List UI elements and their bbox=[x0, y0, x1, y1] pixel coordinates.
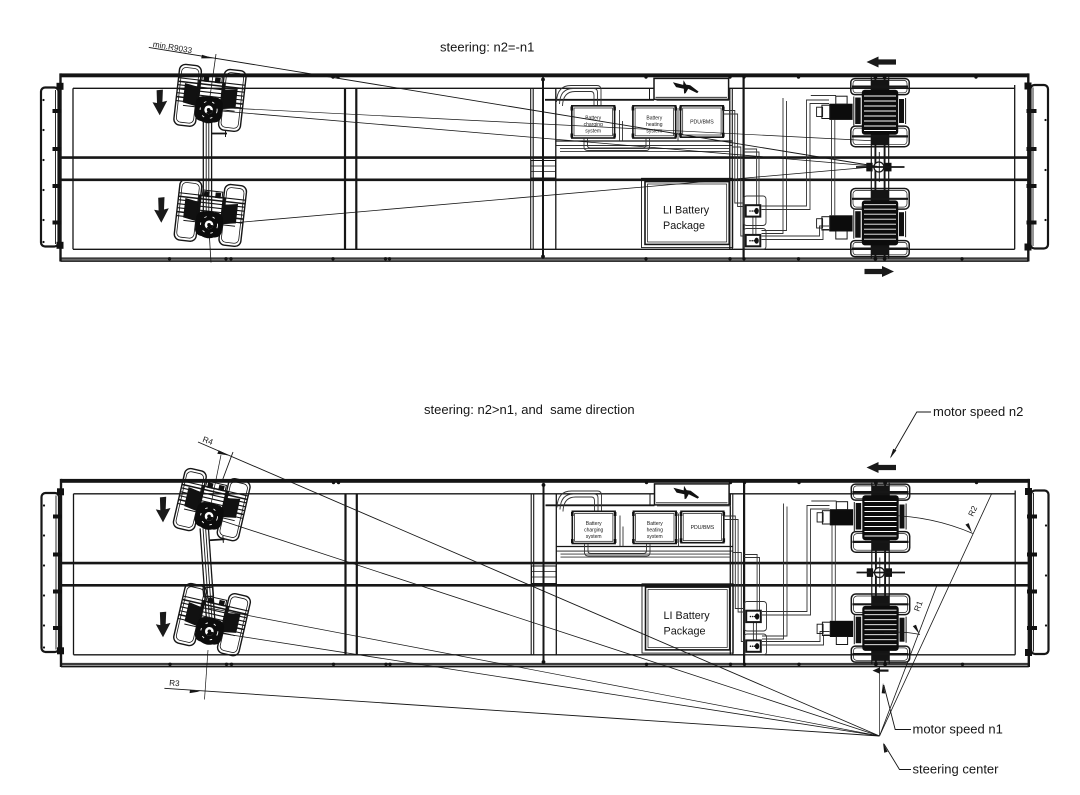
svg-text:R2: R2 bbox=[967, 504, 980, 518]
svg-text:R3: R3 bbox=[169, 679, 181, 689]
svg-text:steering center: steering center bbox=[913, 762, 1000, 777]
svg-text:steering: n2>n1, and same dir: steering: n2>n1, and same direction bbox=[424, 402, 635, 417]
svg-text:R4: R4 bbox=[201, 435, 214, 447]
svg-text:steering: n2=-n1: steering: n2=-n1 bbox=[440, 40, 534, 55]
svg-text:min.R9033: min.R9033 bbox=[152, 40, 193, 55]
svg-text:R1: R1 bbox=[912, 599, 924, 612]
svg-text:motor speed n2: motor speed n2 bbox=[933, 404, 1023, 419]
svg-text:motor speed n1: motor speed n1 bbox=[913, 722, 1003, 737]
